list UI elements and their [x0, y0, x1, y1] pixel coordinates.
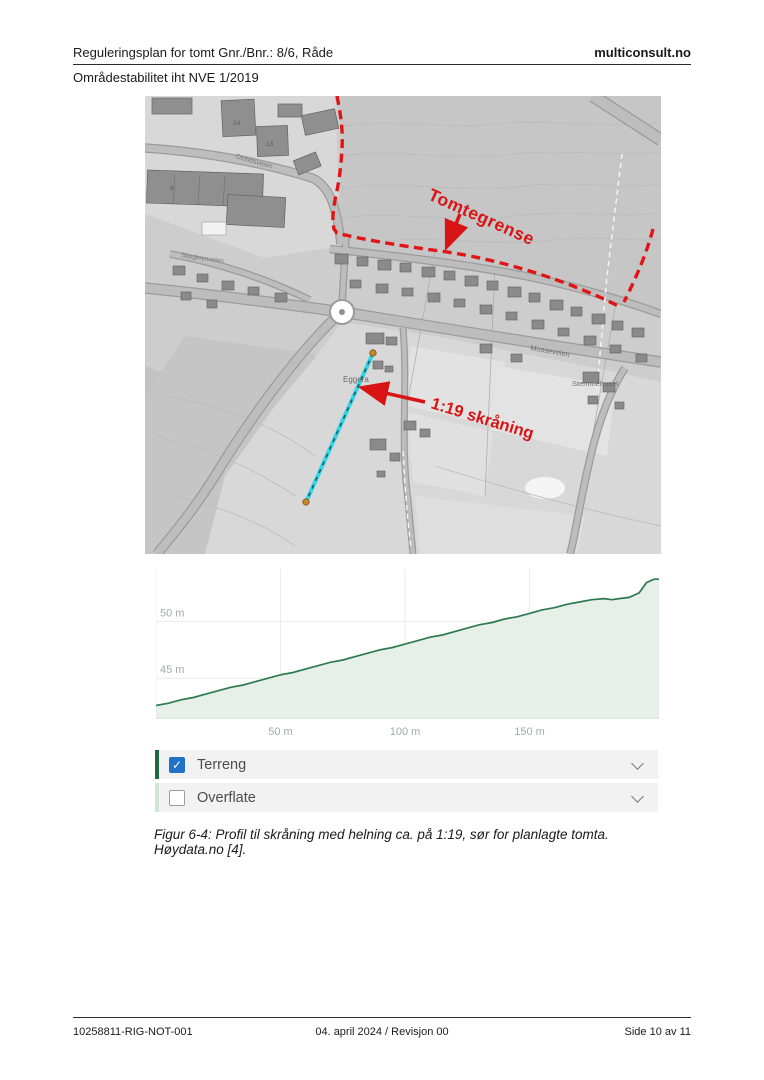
layer-accent-bar — [155, 783, 159, 812]
overflate-checkbox[interactable]: ✓ — [169, 790, 185, 806]
header-subtitle: Områdestabilitet iht NVE 1/2019 — [73, 70, 259, 85]
building-number-6: 6 — [170, 185, 174, 192]
svg-text:50 m: 50 m — [268, 726, 292, 738]
footer: 10258811-RIG-NOT-001 04. april 2024 / Re… — [73, 1026, 691, 1038]
layer-row-terreng[interactable]: ✓ Terreng — [155, 750, 658, 779]
check-icon: ✓ — [172, 759, 182, 771]
svg-text:100 m: 100 m — [390, 726, 421, 738]
profile-endpoint-top — [370, 350, 376, 356]
svg-text:45 m: 45 m — [160, 664, 184, 676]
figure-caption: Figur 6-4: Profil til skråning med helni… — [154, 827, 674, 857]
building-white — [202, 222, 226, 235]
map-figure: Tomtegrense 1:19 skråning Eggera Mosseve… — [145, 96, 661, 554]
footer-date-revision: 04. april 2024 / Revisjon 00 — [279, 1026, 485, 1038]
roundabout — [330, 300, 354, 324]
layer-label: Overflate — [197, 790, 256, 806]
place-label-stemmehuset: Stemmehuset — [572, 379, 619, 388]
layer-row-overflate[interactable]: ✓ Overflate — [155, 783, 658, 812]
header-brand: multiconsult.no — [594, 45, 691, 60]
map-svg: Tomtegrense 1:19 skråning Eggera Mosseve… — [145, 96, 661, 554]
profile-endpoint-bottom — [303, 499, 309, 505]
footer-doc-id: 10258811-RIG-NOT-001 — [73, 1026, 279, 1038]
terreng-checkbox[interactable]: ✓ — [169, 757, 185, 773]
place-label-eggera: Eggera — [343, 375, 369, 384]
chevron-down-icon[interactable] — [631, 757, 644, 770]
document-page: Reguleringsplan for tomt Gnr./Bnr.: 8/6,… — [0, 0, 764, 1080]
layer-accent-bar — [155, 750, 159, 779]
building-number-14: 14 — [233, 120, 241, 127]
chevron-down-icon[interactable] — [631, 790, 644, 803]
elevation-profile-chart: 45 m50 m50 m100 m150 m — [156, 569, 659, 745]
header-title: Reguleringsplan for tomt Gnr./Bnr.: 8/6,… — [73, 45, 333, 60]
white-patch — [525, 477, 565, 499]
footer-page-info: Side 10 av 11 — [485, 1026, 691, 1038]
header-rule — [73, 64, 691, 65]
svg-text:50 m: 50 m — [160, 607, 184, 619]
svg-text:150 m: 150 m — [514, 726, 545, 738]
building-number-13: 13 — [266, 141, 274, 148]
footer-rule — [73, 1017, 691, 1018]
elevation-chart-svg: 45 m50 m50 m100 m150 m — [156, 569, 659, 745]
layer-label: Terreng — [197, 757, 246, 773]
